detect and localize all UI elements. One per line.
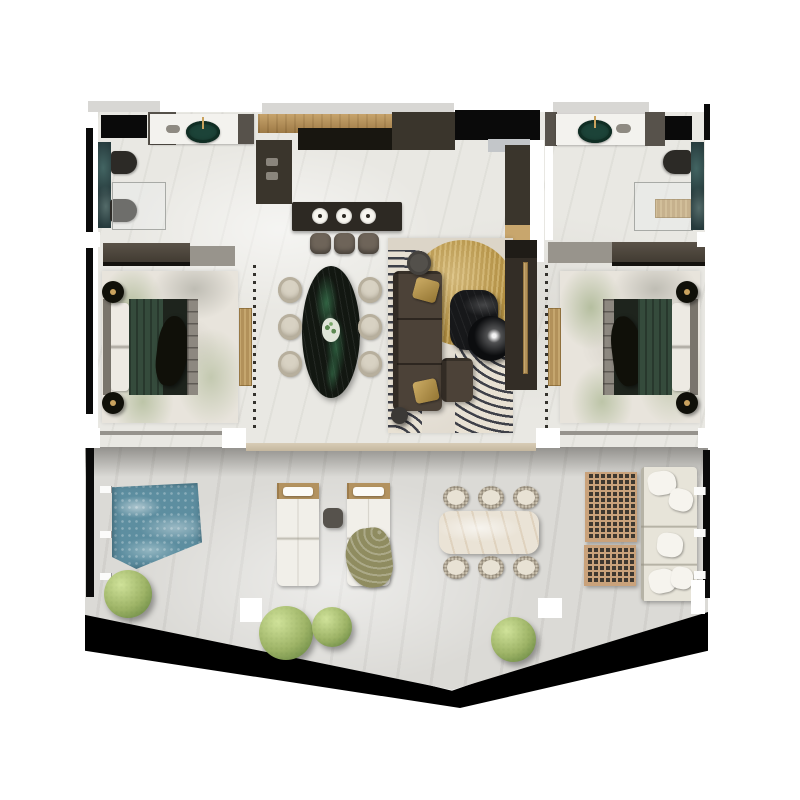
edge-notch (538, 598, 562, 618)
mullion (698, 428, 710, 448)
railing-shadow-left (86, 448, 94, 597)
railing-post (694, 529, 706, 537)
left-wall-band-lower (86, 248, 93, 414)
wicker-chair (443, 556, 469, 579)
shower-right (634, 182, 693, 231)
wardrobe-left-edge (103, 262, 190, 266)
dining-chair (278, 277, 302, 303)
wicker-chair (513, 486, 539, 509)
wardrobe-right-edge (612, 262, 705, 266)
gold-console-left (239, 308, 252, 386)
entry-cabinet (505, 145, 530, 225)
left-wall-band-upper (86, 128, 93, 232)
sofa-chaise (441, 358, 473, 402)
wardrobe-right (612, 242, 705, 264)
bath-wall-right (545, 146, 553, 240)
topiary-bush (491, 617, 536, 662)
mullion (85, 428, 100, 448)
pendant-light (360, 208, 376, 224)
railing-post (694, 571, 706, 579)
slatted-partition-right (545, 265, 548, 430)
bed-right-pillows (672, 303, 690, 391)
wicker-chair (513, 556, 539, 579)
wicker-chair (478, 556, 504, 579)
dining-chair (358, 314, 382, 340)
oven-handle (266, 172, 278, 180)
dining-chair (358, 351, 382, 377)
wall-pier (238, 114, 254, 144)
side-table-small (391, 407, 408, 424)
door-notch-left (85, 232, 100, 247)
toilet-right (663, 150, 691, 174)
nightstand (102, 281, 124, 303)
pendant-light (312, 208, 328, 224)
door-notch-right (697, 232, 710, 247)
glass-wall-right (560, 431, 705, 435)
exterior-block-entry (455, 110, 540, 140)
lounger-pillow (283, 487, 313, 496)
faucet-left (202, 117, 204, 129)
nightstand (676, 392, 698, 414)
flower-centerpiece (322, 318, 340, 342)
railing-panel-end (691, 580, 705, 614)
slatted-partition-left (253, 265, 256, 430)
railing-post (100, 531, 112, 538)
wicker-chair (478, 486, 504, 509)
lounger-pillow (353, 487, 384, 496)
bar-stool (310, 233, 331, 254)
outdoor-dining-table (439, 511, 539, 554)
ottoman (407, 251, 431, 275)
vanity-tray (166, 125, 180, 133)
shower-left (112, 182, 166, 230)
outdoor-pillow (656, 532, 684, 559)
bar-stool (358, 233, 379, 254)
sofa-cushion-seam (397, 318, 442, 320)
tv-wall-gold-strip (523, 262, 528, 374)
dining-chair (358, 277, 382, 303)
roof-sliver-right (553, 102, 649, 114)
outdoor-pillow (667, 486, 696, 513)
railing-post (100, 486, 112, 493)
bed-right-duvet (638, 299, 672, 395)
mullion (222, 428, 246, 448)
exterior-block-top-left (101, 115, 147, 138)
bed-left-pillows (111, 303, 129, 391)
topiary-bush (259, 606, 313, 660)
floor-plan-render (0, 0, 800, 800)
lattice-coffee-table (584, 545, 636, 586)
wall-pier (645, 112, 665, 146)
lattice-coffee-table (585, 472, 637, 542)
nightstand (102, 392, 124, 414)
gold-console-right (548, 308, 561, 386)
roof-sliver-left (88, 101, 160, 112)
pendant-light (336, 208, 352, 224)
sliding-door-track (246, 443, 536, 451)
oven-handle (266, 158, 278, 166)
topiary-bush (312, 607, 352, 647)
exterior-block-corner-right (704, 104, 710, 140)
wardrobe-left (103, 243, 190, 264)
bed-left-headboard (103, 299, 111, 395)
sofa-cushion-seam (397, 363, 442, 365)
bed-left-foot-bench (187, 299, 198, 395)
wicker-chair (443, 486, 469, 509)
railing-post (694, 487, 706, 495)
edge-notch (240, 598, 262, 622)
outdoor-sofa (641, 467, 697, 601)
lounger-side-table (323, 508, 343, 528)
faucet-right (594, 116, 596, 128)
hall-band-left (190, 246, 235, 266)
vanity-tray (616, 124, 631, 133)
tv-media-wall (505, 240, 537, 390)
toilet-left (111, 151, 137, 174)
bar-stool (334, 233, 355, 254)
nightstand (676, 281, 698, 303)
kitchen-tall-cabinets (392, 112, 455, 150)
dining-chair (278, 314, 302, 340)
hall-band-right (548, 242, 612, 263)
mullion (536, 428, 560, 448)
teal-marble-wall-right (691, 142, 704, 230)
glass-wall-left (98, 431, 222, 435)
bed-right-headboard (690, 299, 698, 395)
topiary-bush (104, 570, 152, 618)
dining-chair (278, 351, 302, 377)
